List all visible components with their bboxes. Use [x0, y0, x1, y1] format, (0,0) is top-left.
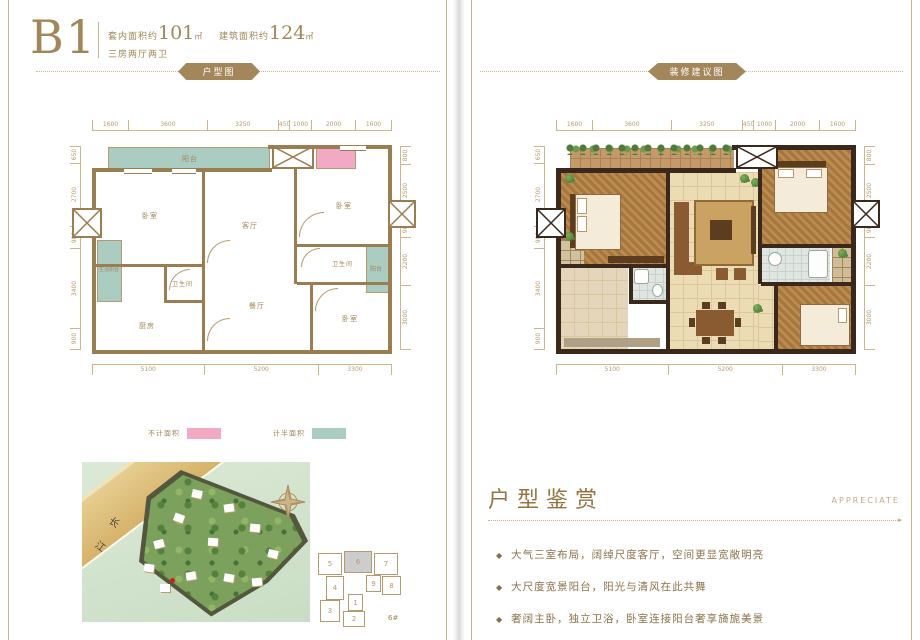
site-map: 长 江 [82, 462, 310, 622]
floorplan-technical: 1600 3600 3250 450 1000 2000 1600 5100 5… [44, 116, 416, 396]
tv-cabinet [751, 206, 756, 254]
room-label-bed-right: 卧室 [336, 201, 352, 211]
keyplan-block-8: 8 [382, 576, 401, 595]
legend-item: 计半面积 [273, 428, 346, 439]
room-label-service-balcony: 生活阳台 [99, 266, 119, 273]
diamond-bullet-icon: ◆ [496, 551, 502, 560]
balcony-foliage [566, 144, 738, 155]
unit-location-marker [170, 578, 175, 583]
area1-label: 套内面积约 [108, 32, 158, 42]
arrow-icon: ➤ [897, 517, 902, 524]
room-label-bed-master: 卧室 [142, 211, 158, 221]
air-shaft-icon [72, 208, 102, 238]
legend-item: 不计面积 [148, 428, 221, 439]
sink [768, 252, 782, 266]
shower [634, 269, 649, 284]
appreciate-title: 户型鉴赏 [488, 488, 604, 513]
appreciate-subtitle: APPRECIATE [832, 496, 900, 505]
dim-top-row: 1600 3600 3250 450 1000 2000 1600 [92, 120, 392, 131]
room-label-bath-right: 卫生间 [332, 259, 353, 268]
coffee-table [710, 220, 732, 240]
keyplan-block-6-highlighted: 6 [344, 551, 372, 573]
appreciate-section: 户型鉴赏 APPRECIATE ➤ ◆大气三室布局，阔绰尺度客厅，空间更显宽敞明… [488, 482, 900, 640]
bathtub [808, 250, 828, 278]
diamond-bullet-icon: ◆ [496, 615, 502, 624]
area1-unit: ㎡ [194, 32, 203, 41]
right-page-border [911, 0, 912, 640]
dim: 2000 [311, 120, 355, 130]
keyplan-block-9: 9 [366, 575, 381, 592]
area2-value: 124 [269, 22, 305, 44]
page-spine [446, 0, 472, 640]
left-page-border [8, 0, 9, 640]
dim: 3600 [128, 120, 207, 130]
header-divider [98, 22, 99, 58]
legend-swatch-teal [312, 428, 346, 439]
legend-swatch-pink [187, 428, 221, 439]
toilet [652, 284, 663, 297]
unit-title: B1 [30, 14, 97, 60]
dim-right-col: 800 2500 900 2200 3000 [400, 146, 411, 350]
dim-left-col: 650 2700 900 3400 900 [534, 146, 545, 350]
room-label-dining: 餐厅 [249, 301, 265, 311]
air-shaft-icon [536, 208, 566, 238]
area-legend: 不计面积 计半面积 [148, 428, 346, 439]
bullet-item: ◆大气三室布局，阔绰尺度客厅，空间更显宽敞明亮 [496, 547, 900, 562]
keyplan-block-7: 7 [374, 553, 398, 575]
dim-bottom-row: 5100 5200 3300 [556, 364, 856, 375]
brochure-spread: B1 套内面积约101㎡ 建筑面积约124㎡ 三房两厅两卫 户型图 装修建议图 … [0, 0, 920, 640]
tab-floorplan-ribbon[interactable]: 户型图 [178, 63, 260, 80]
area2-label: 建筑面积约 [219, 32, 269, 42]
tab-decoration-ribbon[interactable]: 装修建议图 [648, 63, 746, 80]
dim: 1600 [92, 120, 128, 130]
kitchen-counter [564, 338, 660, 347]
room-label-bed-bottom: 卧室 [342, 314, 358, 324]
dim-bottom-row: 5100 5200 3300 [92, 364, 392, 375]
room-label-balcony-right: 阳台 [370, 264, 382, 273]
keyplan: 5 6 7 9 8 4 1 3 2 6# [318, 548, 422, 632]
dim: 5100 [92, 365, 204, 375]
dim-left-col: 650 2700 900 3400 900 [70, 146, 81, 350]
area1-value: 101 [158, 22, 194, 44]
compass-icon [270, 484, 306, 520]
room-label-balcony-top: 阳台 [182, 154, 198, 164]
keyplan-block-5: 5 [318, 553, 342, 575]
room-label-kitchen: 厨房 [139, 321, 155, 331]
dim: 5200 [204, 365, 318, 375]
dim-top-row: 1600 3600 3250 450 1000 2000 1600 [556, 120, 856, 131]
air-shaft-icon [388, 200, 416, 228]
keyplan-block-1: 1 [348, 594, 363, 611]
dim-right-col: 800 2500 900 2200 3000 [864, 146, 875, 350]
keyplan-highlight-label: 6# [388, 614, 398, 622]
dim: 450 [278, 120, 289, 130]
diamond-bullet-icon: ◆ [496, 583, 502, 592]
dim: 3250 [207, 120, 278, 130]
dining-table [696, 310, 734, 336]
floorplan-render: 1600 3600 3250 450 1000 2000 1600 5100 5… [508, 116, 880, 396]
area2-unit: ㎡ [305, 32, 314, 41]
bullet-item: ◆大尺度宽景阳台，阳光与清风在此共舞 [496, 579, 900, 594]
room-label-bath-left: 卫生间 [172, 279, 193, 288]
bullet-item: ◆奢阔主卧，独立卫浴，卧室连接阳台奢享旖旎美景 [496, 611, 900, 626]
keyplan-block-4: 4 [326, 576, 344, 600]
sofa-furniture [674, 202, 689, 262]
appreciate-rule: ➤ [488, 520, 900, 521]
dim: 1000 [289, 120, 311, 130]
dim: 1600 [355, 120, 392, 130]
elevator-shaft-icon [736, 145, 778, 169]
keyplan-block-2: 2 [343, 611, 365, 627]
layout-line: 三房两厅两卫 [108, 47, 168, 60]
room-label-living: 客厅 [242, 221, 258, 231]
area-info: 套内面积约101㎡ 建筑面积约124㎡ [108, 22, 314, 44]
air-shaft-icon [852, 200, 880, 228]
keyplan-block-3: 3 [320, 600, 340, 622]
dim: 3300 [318, 365, 392, 375]
